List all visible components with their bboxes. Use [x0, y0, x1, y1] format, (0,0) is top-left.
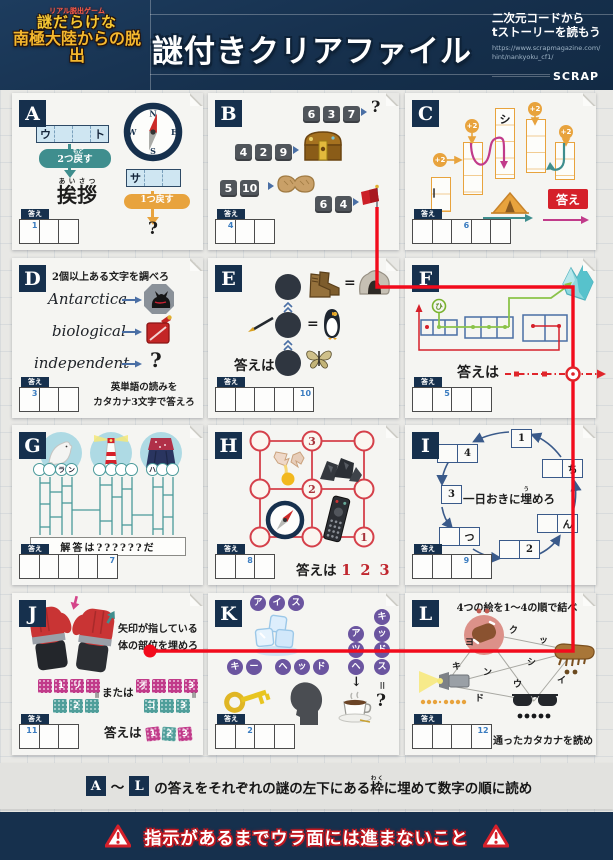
- kana-circle: ア: [250, 595, 266, 611]
- answer-cell: 9: [451, 554, 472, 579]
- answer-box-d: 答え 3: [21, 369, 79, 412]
- kana-circle: ヘ: [275, 659, 291, 675]
- panel-label-e: E: [215, 265, 242, 292]
- coal-icon: [316, 453, 364, 483]
- ice-cubes-icon: [252, 613, 302, 657]
- puzzle-panel-h: H 3 2 1: [208, 425, 399, 585]
- plus-two-badge: +2: [433, 153, 447, 167]
- down-arrow: ↓: [351, 675, 362, 690]
- puzzle-panel-i: I 1 4 3 つ 2 ん ち 一日おきに埋うめろ 答え 9: [405, 425, 596, 585]
- equals-rotated: =: [376, 681, 389, 690]
- letter-circle: ン: [65, 463, 78, 476]
- header: リアル脱出ゲーム 謎だらけな 南極大陸からの脱出 謎付きクリアファイル 二次元コ…: [0, 0, 613, 90]
- answer-cell: [412, 219, 433, 244]
- answer-cell: 3: [19, 387, 40, 412]
- answer-label: 答え: [414, 544, 442, 554]
- panel-label-j: J: [19, 600, 46, 627]
- final-instruction-strip: A 〜 L の答えをそれぞれの謎の左下にある枠わくに埋めて数字の順に読め: [0, 763, 613, 809]
- puzzle-panel-g: G ラ ン ハ: [12, 425, 203, 585]
- mystery-circle: [275, 274, 301, 300]
- kana-boxes-wt: ウ ト: [36, 125, 109, 143]
- coffee-cup-icon: [336, 691, 376, 725]
- answer-cell: [471, 554, 492, 579]
- answer-cell: [39, 554, 60, 579]
- pink-arrow-icon: [68, 595, 82, 611]
- puzzle-panel-a: A ウ ト 2つ戻もどす 挨拶あいさつ N E S W サ 1つ戻す ? 答え …: [12, 93, 203, 250]
- question-mark: ?: [150, 348, 162, 372]
- answer-box-l: 答え 12: [414, 706, 492, 749]
- warning-text: 指示があるまでウラ面には進まないこと: [145, 824, 469, 849]
- answer-numbers: 1 2 3: [341, 562, 391, 579]
- instruction-text: 矢印が指している体の部位を埋めろ: [118, 621, 202, 655]
- kana-circle: ス: [374, 659, 390, 675]
- answer-cell: [215, 554, 236, 579]
- panel-label-h: H: [215, 432, 242, 459]
- kana-cell: [72, 126, 90, 142]
- answer-cell: [215, 724, 236, 749]
- number-tiles-510: 510: [220, 177, 262, 197]
- cycle-box: ち: [542, 459, 583, 478]
- answer-cell: [78, 554, 99, 579]
- answer-cell: [254, 387, 275, 412]
- panel-label-l: L: [412, 600, 439, 627]
- answer-cell: [432, 554, 453, 579]
- back-two-pill: 2つ戻もどす: [39, 149, 111, 168]
- puzzle-panel-j: J 矢印が指している体の部位を埋めろ 1リ = 2 または: [12, 593, 203, 755]
- compass-icon: [264, 499, 306, 541]
- kana-circle: イ: [269, 595, 285, 611]
- answer-cell: [412, 387, 433, 412]
- back-one-pill: 1つ戻す: [124, 194, 190, 209]
- cycle-box: 4: [437, 444, 478, 463]
- or-text: または: [102, 685, 134, 700]
- answer-box-c: 答え 6: [414, 201, 511, 244]
- cracked-egg-icon: [270, 449, 306, 487]
- page-title: 謎付きクリアファイル: [152, 26, 472, 71]
- hint-url-line1: https://www.scrapmagazine.com/: [492, 44, 600, 52]
- svg-text:S: S: [150, 146, 156, 156]
- mystery-circle: [275, 312, 301, 338]
- kana-circle: ア: [348, 626, 364, 642]
- kana-circle: キ: [374, 609, 390, 625]
- answer-cell: [235, 387, 256, 412]
- answer-label: 答え: [414, 377, 442, 387]
- edge-letter: イ: [557, 673, 566, 686]
- letter-circle: [166, 463, 179, 476]
- answer-label: 答え: [414, 209, 442, 219]
- answer-cell: [58, 554, 79, 579]
- answer-cell: 5: [432, 387, 453, 412]
- qr-note-line2: ストーリーを読もう: [498, 25, 601, 39]
- compass-icon: N E S W: [122, 101, 184, 163]
- puzzle-panel-b: B 637 ? 429 510 64 答え 4: [208, 93, 399, 250]
- kana-circle: キ: [227, 659, 243, 675]
- pattern-tile: [160, 699, 174, 713]
- kana-cell: [144, 170, 162, 186]
- tile-row-right-bottom: コ3: [144, 695, 192, 714]
- black-cat-icon: [142, 282, 176, 316]
- answer-cell: [39, 219, 60, 244]
- logo-line2: 南極大陸からの脱出: [6, 31, 148, 65]
- answer-cell: 12: [471, 724, 492, 749]
- answer-cell: [274, 387, 295, 412]
- kana-circle: ッ: [374, 626, 390, 642]
- kana-boxes-sa: サ: [126, 169, 181, 187]
- kana-circle: ー: [246, 659, 262, 675]
- answer-wa-text: 答えは 1 2 3: [296, 559, 392, 579]
- english-word-1: Antarctica: [48, 290, 127, 308]
- puzzle-panel-c: C シ ー +2 +2 +2 +2 答え 答え: [405, 93, 596, 250]
- kana-circle: ッ: [294, 659, 310, 675]
- answer-box-b: 答え 4: [217, 201, 275, 244]
- answer-cell: 11: [19, 724, 40, 749]
- letter-box-l: L: [129, 776, 149, 796]
- edge-letter: キ: [452, 659, 461, 672]
- circuit-diagram: ひ: [413, 280, 589, 364]
- svg-text:3: 3: [308, 435, 316, 448]
- kana-circle: ド: [313, 659, 329, 675]
- plus-two-badge: +2: [528, 102, 542, 116]
- answer-box-k: 答え 2: [217, 706, 295, 749]
- answer-cell: 1: [19, 219, 40, 244]
- answer-cell: [451, 387, 472, 412]
- cave-icon: [356, 268, 392, 296]
- kana-circle: ス: [288, 595, 304, 611]
- question-mark: ?: [376, 691, 386, 711]
- answer-cell: 8: [235, 554, 256, 579]
- arrow-right-icon: [122, 328, 142, 336]
- fuel-can-icon: [144, 314, 174, 346]
- answer-label: 答え: [217, 209, 245, 219]
- edge-letter: ド: [475, 691, 484, 704]
- answer-cell: 10: [293, 387, 314, 412]
- answer-box-h: 答え 8: [217, 536, 275, 579]
- answer-cell: [215, 387, 236, 412]
- kana-cell: サ: [127, 170, 144, 186]
- answer-cell: [58, 724, 79, 749]
- question-mark: ?: [371, 97, 380, 116]
- answer-cell: [490, 219, 511, 244]
- panel-label-k: K: [215, 600, 242, 627]
- answer-cell: [432, 219, 453, 244]
- answer-cell: [471, 387, 492, 412]
- puzzle-panel-k: K ア イ ス キ ー ヘ ッ ド ア ツ ヘ ↓ キ ッ ド ス = ? 答え: [208, 593, 399, 755]
- edge-letter: ウ: [513, 677, 522, 690]
- panel-label-i: I: [412, 432, 439, 459]
- answer-label: 答え: [21, 544, 49, 554]
- answer-cell: [451, 724, 472, 749]
- edge-letter: ン: [483, 665, 492, 678]
- boots-icon: [306, 270, 346, 300]
- puzzle-panel-f: F ひ 答えは 答え 5: [405, 258, 596, 418]
- letter-circle: [125, 463, 138, 476]
- answer-note: 英単語の読みをカタカナ3文字で答えろ: [90, 380, 198, 410]
- answer-box-i: 答え 9: [414, 536, 492, 579]
- peanut-icon: [276, 173, 316, 195]
- instruction-text: 2個以上ある文字を調べろ: [52, 268, 197, 283]
- kana-cell: [162, 170, 180, 186]
- equals-sign: =: [307, 316, 319, 332]
- answer-cell: [254, 724, 275, 749]
- answer-cell: [412, 724, 433, 749]
- ladder-lottery-diagram: [33, 477, 181, 535]
- cycle-box: 3: [441, 485, 462, 504]
- answer-cell: [432, 724, 453, 749]
- kana-circle: ツ: [348, 642, 364, 658]
- answer-cell: [235, 219, 256, 244]
- panel-label-d: D: [19, 265, 46, 292]
- number-tiles-637: 637: [303, 103, 363, 123]
- warning-bar: 指示があるまでウラ面には進まないこと: [0, 812, 613, 860]
- brown-glove-icon: [551, 637, 597, 677]
- cycle-box: 1: [511, 429, 532, 448]
- qr-note-line1: 二次元コードから: [492, 11, 584, 25]
- kana-cell: ト: [90, 126, 108, 142]
- svg-text:2: 2: [308, 483, 316, 496]
- number-tiles-429: 429: [235, 141, 295, 161]
- answer-label: 答え: [217, 714, 245, 724]
- plus-two-badge: +2: [559, 125, 573, 139]
- answer-box-j: 答え 11: [21, 706, 79, 749]
- brand-rule: [492, 76, 550, 77]
- arrow-right-icon: [361, 108, 367, 116]
- hint-url-line2: hint/nankyoku_cf1/: [492, 53, 553, 61]
- panel-label-c: C: [412, 100, 439, 127]
- warning-triangle-icon: [483, 824, 509, 848]
- puzzle-panel-e: E = = 答えは 答え: [208, 258, 399, 418]
- svg-text:E: E: [171, 127, 177, 137]
- cycle-box: 2: [499, 540, 540, 559]
- answer-label: 答え: [217, 544, 245, 554]
- teal-arrow-icon: [104, 609, 118, 625]
- panel-label-g: G: [19, 432, 46, 459]
- answer-cell: 6: [451, 219, 472, 244]
- meat-bun-icon: [460, 607, 508, 659]
- pattern-tile: [85, 699, 99, 713]
- svg-text:ひ: ひ: [435, 302, 443, 311]
- arrow-right-icon: [122, 296, 142, 304]
- answer-label: 答え: [414, 714, 442, 724]
- answer-cell: [58, 387, 79, 412]
- remote-control-icon: [322, 495, 352, 545]
- answer-cell: [254, 219, 275, 244]
- number-tiles-64: 64: [315, 193, 355, 213]
- svg-text:1: 1: [360, 531, 368, 544]
- answer-box-e: 答え 10: [217, 369, 314, 412]
- flashlight-icon: [417, 669, 473, 709]
- pattern-tile: [38, 679, 52, 693]
- kana-circle: ド: [374, 642, 390, 658]
- penguin-icon: [320, 306, 344, 340]
- answer-box-f: 答え 5: [414, 369, 492, 412]
- answer-cell: [274, 724, 295, 749]
- sunglasses-icon: [510, 691, 560, 723]
- kana-cell: [54, 126, 72, 142]
- question-mark: ?: [145, 219, 161, 239]
- kana-circle: ヘ: [348, 659, 364, 675]
- english-word-2: biological: [52, 322, 126, 340]
- edge-letter: シ: [527, 655, 536, 668]
- arrow-right-icon: [122, 360, 142, 368]
- svg-text:N: N: [149, 109, 156, 119]
- pattern-tile: [152, 679, 166, 693]
- plus-two-badge: +2: [465, 119, 479, 133]
- answer-cell: [471, 219, 492, 244]
- answer-wa-text: 答えは 123: [104, 722, 194, 741]
- answer-label: 答え: [21, 714, 49, 724]
- puzzle-panel-l: L 4つの絵を1〜4の順で結べ ヨ: [405, 593, 596, 755]
- answer-cell: 7: [97, 554, 118, 579]
- answer-cell: [412, 554, 433, 579]
- answer-cell: 2: [235, 724, 256, 749]
- red-flag-icon: [358, 183, 390, 219]
- answer-label: 答え: [217, 377, 245, 387]
- puzzle-panel-d: D 2個以上ある文字を調べろ Antarctica biological ind…: [12, 258, 203, 418]
- letter-box-a: A: [86, 776, 106, 796]
- panel-label-b: B: [215, 100, 242, 127]
- header-rule-bottom: [150, 74, 550, 75]
- answer-cell: 4: [215, 219, 236, 244]
- edge-letter: ク: [509, 623, 518, 636]
- read-kana-text: 通ったカタカナを読め: [487, 732, 593, 747]
- qr-note: 二次元コードから tストーリーを読もう https://www.scrapmag…: [492, 11, 610, 61]
- treasure-chest-icon: [302, 129, 344, 163]
- edge-letter: ヨ: [465, 635, 474, 648]
- panel-label-f: F: [412, 265, 439, 292]
- cycle-box: ん: [537, 514, 578, 533]
- answer-cell: [39, 387, 60, 412]
- center-instruction: 一日おきに埋うめろ: [463, 487, 573, 507]
- equals-sign: =: [344, 275, 356, 291]
- edge-letter: ッ: [539, 633, 548, 646]
- pattern-tile: [168, 679, 182, 693]
- svg-text:W: W: [127, 127, 138, 137]
- kana-cell: ウ: [37, 126, 54, 142]
- tilde: 〜: [111, 776, 125, 796]
- arrow-right-icon: [293, 146, 299, 154]
- answer-label: 答え: [21, 377, 49, 387]
- warning-triangle-icon: [105, 824, 131, 848]
- panel-label-a: A: [19, 100, 46, 127]
- event-logo: リアル脱出ゲーム 謎だらけな 南極大陸からの脱出: [6, 8, 148, 65]
- answer-cell: [39, 724, 60, 749]
- puzzle-sheet: { "colors":{"navy":"#16304d","red":"#d52…: [0, 0, 613, 860]
- final-instruction-text: の答えをそれぞれの謎の左下にある枠わくに埋めて数字の順に読め: [154, 776, 532, 797]
- arrow-right-icon: [268, 182, 274, 190]
- answer-cell: [58, 219, 79, 244]
- answer-cell: [19, 554, 40, 579]
- answer-box-a: 答え 1: [21, 201, 79, 244]
- answer-label: 答え: [21, 209, 49, 219]
- answer-cell: [254, 554, 275, 579]
- brand-label: SCRAP: [553, 70, 599, 83]
- answer-box-g: 答え 7: [21, 536, 118, 579]
- pen-icon: [246, 314, 276, 334]
